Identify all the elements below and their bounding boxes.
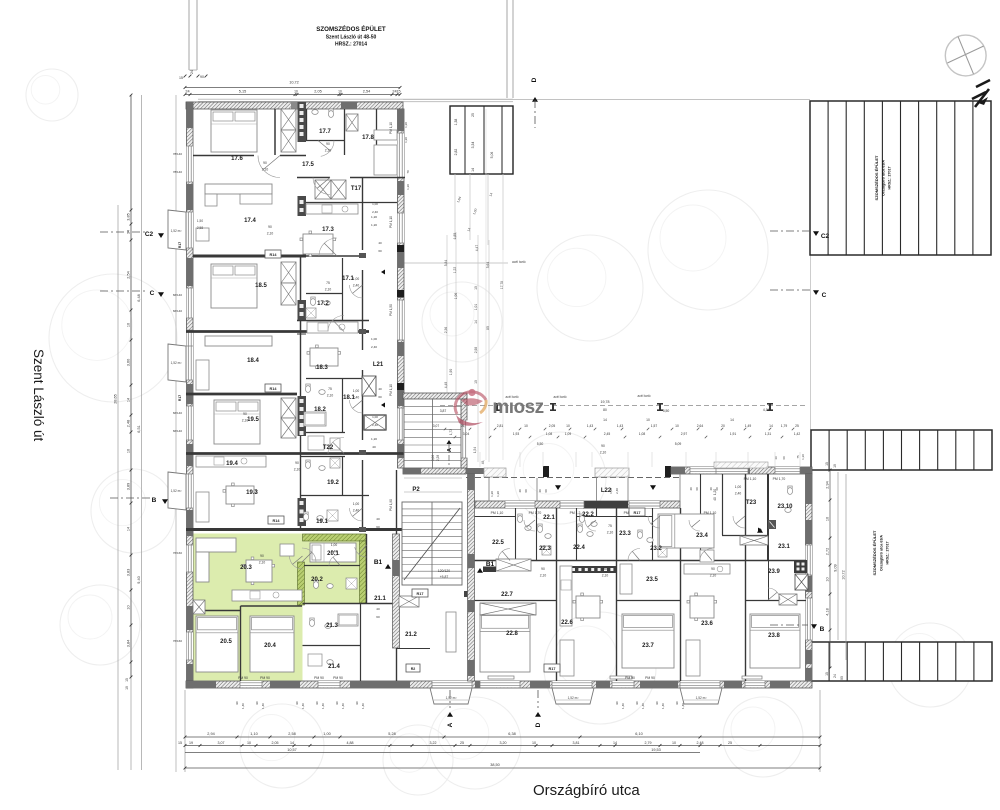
svg-text:SZOMSZÉDOS ÉPÜLET: SZOMSZÉDOS ÉPÜLET [316, 25, 386, 33]
svg-text:90: 90 [263, 161, 267, 165]
svg-text:22.2: 22.2 [582, 512, 594, 518]
svg-text:25: 25 [471, 113, 475, 117]
svg-text:1,91: 1,91 [730, 432, 737, 436]
svg-text:80: 80 [603, 408, 607, 412]
svg-text:1,85: 1,85 [453, 233, 457, 240]
svg-text:2,64: 2,64 [697, 424, 704, 428]
svg-text:1,52 m²: 1,52 m² [568, 696, 579, 700]
svg-text:40: 40 [376, 607, 380, 611]
svg-text:R17: R17 [178, 395, 182, 401]
svg-text:1,00: 1,00 [323, 732, 330, 736]
svg-text:PM 1,10: PM 1,10 [491, 511, 504, 515]
svg-text:6,51: 6,51 [137, 425, 141, 432]
svg-text:6,10: 6,10 [635, 732, 642, 736]
svg-text:4,47: 4,47 [475, 245, 479, 252]
svg-text:10,72: 10,72 [842, 570, 846, 580]
svg-text:60: 60 [524, 489, 528, 493]
svg-text:10: 10 [675, 424, 679, 428]
svg-text:2,94: 2,94 [826, 481, 830, 488]
svg-text:1,20: 1,20 [406, 184, 410, 190]
svg-text:22.8: 22.8 [506, 631, 518, 637]
svg-text:1,22: 1,22 [453, 267, 457, 274]
svg-text:23.7: 23.7 [642, 643, 654, 649]
svg-text:5,28: 5,28 [388, 732, 395, 736]
svg-text:HRSZ.: 27014: HRSZ.: 27014 [335, 42, 367, 48]
svg-text:T23: T23 [746, 500, 757, 506]
svg-text:15: 15 [178, 741, 182, 745]
svg-text:1,40: 1,40 [361, 703, 365, 709]
svg-text:1,43: 1,43 [587, 424, 594, 428]
svg-text:66/140: 66/140 [173, 309, 183, 313]
svg-text:19: 19 [189, 741, 193, 745]
svg-text:PM 1,10: PM 1,10 [389, 216, 393, 228]
svg-text:1,00: 1,00 [371, 337, 377, 341]
svg-text:4,18: 4,18 [826, 608, 830, 615]
svg-text:PM 1,70: PM 1,70 [773, 477, 786, 481]
svg-text:1,38: 1,38 [454, 119, 458, 126]
svg-text:1,20: 1,20 [490, 491, 494, 497]
svg-text:90: 90 [326, 142, 330, 146]
svg-text:90: 90 [711, 567, 715, 571]
svg-text:90: 90 [255, 701, 259, 705]
svg-text:2,40: 2,40 [735, 492, 742, 496]
svg-text:3,89: 3,89 [127, 483, 131, 490]
svg-text:PM 90: PM 90 [645, 676, 655, 680]
svg-text:60: 60 [695, 487, 699, 491]
svg-text:3,85: 3,85 [127, 213, 131, 220]
svg-text:20.2: 20.2 [311, 577, 323, 583]
svg-text:1,20: 1,20 [801, 454, 805, 460]
svg-text:1,20: 1,20 [404, 122, 408, 128]
svg-text:acél tartó: acél tartó [637, 394, 650, 398]
svg-text:SZOMSZÉDOS ÉPÜLET: SZOMSZÉDOS ÉPÜLET [872, 530, 877, 575]
svg-text:2,10: 2,10 [325, 149, 332, 153]
svg-text:2,10: 2,10 [710, 574, 717, 578]
svg-text:10: 10 [524, 424, 528, 428]
svg-text:2,40: 2,40 [615, 488, 619, 494]
svg-text:23.3: 23.3 [619, 531, 631, 537]
svg-text:19.3: 19.3 [246, 490, 258, 496]
svg-text:3,20: 3,20 [500, 741, 507, 745]
svg-text:4,88: 4,88 [347, 741, 354, 745]
svg-text:2,40: 2,40 [372, 210, 378, 214]
svg-text:R17: R17 [417, 592, 424, 596]
svg-text:90: 90 [603, 567, 607, 571]
svg-text:D: D [531, 77, 538, 82]
svg-text:C2: C2 [145, 231, 154, 238]
svg-text:22.5: 22.5 [492, 540, 504, 546]
svg-text:1,20: 1,20 [404, 137, 408, 143]
svg-text:Országbíró utca 63/A: Országbíró utca 63/A [880, 535, 884, 571]
svg-text:90: 90 [840, 676, 844, 680]
svg-text:2,58: 2,58 [197, 226, 203, 230]
svg-text:10: 10 [127, 449, 131, 453]
svg-text:PM 90: PM 90 [260, 676, 270, 680]
svg-text:1,49: 1,49 [745, 424, 752, 428]
svg-text:22.4: 22.4 [573, 545, 585, 551]
svg-text:38,50: 38,50 [490, 763, 500, 767]
svg-text:14: 14 [603, 418, 607, 422]
svg-text:1,09: 1,09 [565, 432, 572, 436]
svg-text:17.2: 17.2 [317, 301, 329, 307]
svg-text:17,78: 17,78 [500, 281, 504, 289]
svg-text:Szent László út 48-50: Szent László út 48-50 [326, 35, 377, 41]
svg-text:2,40: 2,40 [372, 423, 378, 427]
svg-text:10: 10 [826, 577, 830, 581]
svg-text:40: 40 [378, 387, 382, 391]
svg-text:R14: R14 [270, 253, 278, 257]
svg-text:10,72: 10,72 [289, 81, 299, 85]
svg-text:60: 60 [782, 456, 786, 460]
svg-text:R17: R17 [178, 242, 182, 248]
svg-text:acél tartó: acél tartó [512, 260, 526, 264]
svg-text:17.5: 17.5 [302, 162, 314, 168]
svg-text:28,65: 28,65 [114, 394, 118, 404]
svg-text:1,52 m²: 1,52 m² [171, 361, 182, 365]
svg-text:1,20: 1,20 [496, 491, 500, 497]
svg-text:R17: R17 [549, 667, 556, 671]
svg-text:1,52 m²: 1,52 m² [696, 696, 707, 700]
svg-text:5,50: 5,50 [663, 409, 670, 413]
svg-text:1,00: 1,00 [353, 502, 360, 506]
svg-text:10: 10 [566, 424, 570, 428]
svg-text:PM 90: PM 90 [314, 676, 324, 680]
svg-text:90: 90 [675, 701, 679, 705]
svg-text:10: 10 [672, 741, 676, 745]
svg-text:25: 25 [460, 741, 464, 745]
svg-text:PM 1,50: PM 1,50 [389, 304, 393, 316]
svg-text:18.3: 18.3 [316, 365, 328, 371]
svg-text:1,08: 1,08 [546, 432, 553, 436]
svg-text:Szent László út: Szent László út [31, 349, 46, 442]
svg-text:Országbíró utca 63/A: Országbíró utca 63/A [882, 160, 886, 196]
svg-text:17.7: 17.7 [319, 129, 331, 135]
svg-text:2,54: 2,54 [127, 271, 131, 278]
svg-text:20.4: 20.4 [264, 643, 276, 649]
svg-text:1,40: 1,40 [661, 703, 665, 709]
svg-text:23.10: 23.10 [777, 504, 793, 510]
svg-text:90: 90 [355, 701, 359, 705]
svg-text:25: 25 [795, 424, 799, 428]
svg-text:1,40: 1,40 [681, 703, 685, 709]
svg-text:HRSZ.: 27017: HRSZ.: 27017 [886, 542, 890, 565]
svg-text:1,72: 1,72 [449, 429, 453, 435]
svg-text:1,90: 1,90 [449, 369, 453, 376]
svg-text:2,10: 2,10 [602, 574, 609, 578]
svg-text:23.9: 23.9 [768, 569, 780, 575]
svg-text:3,22: 3,22 [430, 741, 437, 745]
svg-text:14: 14 [474, 320, 478, 324]
svg-text:1,31: 1,31 [765, 432, 772, 436]
svg-text:14: 14 [769, 424, 773, 428]
svg-text:2,10: 2,10 [259, 561, 266, 565]
svg-text:23.2: 23.2 [650, 546, 662, 552]
svg-text:14: 14 [127, 527, 131, 531]
svg-text:15: 15 [825, 462, 829, 466]
svg-text:17.3: 17.3 [322, 227, 334, 233]
svg-text:15: 15 [179, 76, 183, 80]
svg-text:1,79: 1,79 [781, 424, 788, 428]
svg-text:PM 1,10: PM 1,10 [704, 511, 717, 515]
svg-text:40: 40 [774, 456, 778, 460]
svg-text:10: 10 [646, 418, 650, 422]
svg-text:90: 90 [200, 75, 204, 79]
svg-text:2,97: 2,97 [681, 432, 688, 436]
svg-text:90: 90 [335, 701, 339, 705]
svg-text:3,83: 3,83 [127, 569, 131, 576]
svg-text:22.7: 22.7 [501, 592, 513, 598]
svg-text:T17: T17 [351, 186, 362, 192]
svg-text:2,81: 2,81 [497, 424, 504, 428]
svg-text:18.5: 18.5 [255, 283, 267, 289]
svg-text:75: 75 [328, 387, 332, 391]
svg-text:1,40: 1,40 [241, 703, 245, 709]
svg-text:5,84: 5,84 [444, 260, 448, 267]
svg-text:SZOMSZÉDOS ÉPÜLET: SZOMSZÉDOS ÉPÜLET [874, 155, 879, 200]
svg-text:10: 10 [294, 89, 298, 93]
svg-text:19.2: 19.2 [327, 480, 339, 486]
svg-text:C2: C2 [821, 233, 830, 240]
svg-text:L21: L21 [373, 362, 384, 368]
svg-text:2,05: 2,05 [549, 424, 556, 428]
svg-text:10: 10 [474, 286, 478, 290]
svg-text:2,05: 2,05 [272, 741, 279, 745]
svg-text:2,48: 2,48 [697, 741, 704, 745]
svg-text:1,52 m²: 1,52 m² [171, 229, 182, 233]
svg-text:19,78: 19,78 [601, 400, 610, 404]
svg-text:2,79: 2,79 [645, 741, 652, 745]
svg-text:60: 60 [378, 249, 382, 253]
svg-text:24: 24 [833, 674, 837, 678]
svg-text:R17: R17 [634, 511, 641, 515]
svg-text:1,00: 1,00 [353, 277, 360, 281]
svg-text:1,00: 1,00 [372, 415, 378, 419]
svg-text:2,10: 2,10 [607, 531, 614, 535]
svg-text:2,40: 2,40 [353, 396, 360, 400]
svg-text:1,01: 1,01 [474, 304, 478, 311]
svg-text:10: 10 [338, 89, 342, 93]
svg-text:2,72: 2,72 [826, 548, 830, 555]
svg-text:90: 90 [268, 225, 272, 229]
svg-text:15: 15 [825, 672, 829, 676]
svg-text:1,20: 1,20 [371, 437, 377, 441]
svg-text:2,54: 2,54 [363, 89, 370, 93]
svg-text:3,60: 3,60 [127, 359, 131, 366]
svg-text:90: 90 [243, 412, 247, 416]
svg-text:90: 90 [295, 461, 299, 465]
svg-text:PM 1,70: PM 1,70 [529, 511, 542, 515]
svg-text:90: 90 [541, 567, 545, 571]
svg-text:PM 1,10: PM 1,10 [389, 384, 393, 396]
svg-text:2,05: 2,05 [314, 89, 321, 93]
svg-text:22.1: 22.1 [543, 515, 555, 521]
svg-text:5,15: 5,15 [239, 89, 246, 93]
svg-text:14: 14 [730, 418, 734, 422]
svg-text:14: 14 [127, 398, 131, 402]
svg-text:PM 1,10: PM 1,10 [389, 122, 393, 134]
svg-text:23.8: 23.8 [768, 633, 780, 639]
svg-text:23.4: 23.4 [696, 533, 708, 539]
svg-text:PM 1,90: PM 1,90 [389, 499, 393, 511]
svg-text:1,43: 1,43 [617, 424, 624, 428]
svg-text:60: 60 [376, 525, 380, 529]
svg-text:78/140: 78/140 [173, 170, 183, 174]
svg-text:90: 90 [615, 701, 619, 705]
svg-text:1,42: 1,42 [794, 432, 801, 436]
svg-text:C: C [822, 292, 827, 299]
svg-text:5,09: 5,09 [675, 442, 682, 446]
svg-text:10,57: 10,57 [287, 748, 297, 752]
svg-text:15: 15 [396, 89, 400, 93]
svg-text:75: 75 [608, 524, 612, 528]
svg-text:A: A [447, 448, 453, 452]
svg-text:21.2: 21.2 [405, 632, 417, 638]
svg-text:15: 15 [125, 678, 129, 682]
svg-text:2,48: 2,48 [127, 420, 131, 427]
svg-text:25: 25 [728, 741, 732, 745]
svg-text:2,10: 2,10 [327, 394, 334, 398]
svg-text:3,34: 3,34 [471, 142, 475, 149]
svg-text:PM 90: PM 90 [333, 676, 343, 680]
svg-text:R2: R2 [411, 667, 416, 671]
svg-text:1,40: 1,40 [301, 703, 305, 709]
svg-text:3,87: 3,87 [440, 409, 447, 413]
svg-text:90: 90 [235, 701, 239, 705]
svg-text:18.4: 18.4 [247, 358, 259, 364]
svg-text:49,: 49, [481, 460, 485, 465]
svg-text:1,40: 1,40 [261, 703, 265, 709]
svg-text:60: 60 [376, 615, 380, 619]
svg-text:40: 40 [378, 241, 382, 245]
svg-text:2,10: 2,10 [267, 232, 274, 236]
svg-text:66/140: 66/140 [173, 429, 183, 433]
svg-text:1,40: 1,40 [321, 703, 325, 709]
svg-text:1,00: 1,00 [331, 543, 338, 547]
svg-text:A: A [447, 722, 454, 727]
svg-text:5,64: 5,64 [486, 262, 490, 269]
svg-text:24: 24 [185, 89, 189, 93]
svg-text:B: B [820, 626, 825, 633]
svg-text:+5,87: +5,87 [440, 575, 449, 579]
svg-text:21.4: 21.4 [328, 664, 340, 670]
svg-text:66/140: 66/140 [173, 411, 183, 415]
svg-text:3,06: 3,06 [431, 455, 435, 461]
svg-text:75: 75 [326, 281, 330, 285]
svg-text:60: 60 [544, 489, 548, 493]
svg-text:40: 40 [689, 487, 693, 491]
svg-text:1,52 m²: 1,52 m² [171, 489, 182, 493]
svg-text:19: 19 [125, 686, 129, 690]
svg-text:10: 10 [127, 605, 131, 609]
svg-text:40: 40 [713, 497, 717, 501]
svg-text:2,45: 2,45 [604, 432, 611, 436]
svg-text:1,20: 1,20 [371, 223, 377, 227]
svg-text:22.3: 22.3 [539, 546, 551, 552]
svg-text:10: 10 [247, 741, 251, 745]
svg-text:1,40: 1,40 [341, 703, 345, 709]
svg-text:1,93: 1,93 [513, 432, 520, 436]
svg-text:6,38: 6,38 [508, 732, 515, 736]
svg-text:1,54: 1,54 [473, 447, 477, 453]
svg-text:78/140: 78/140 [173, 152, 183, 156]
svg-text:40: 40 [376, 517, 380, 521]
svg-text:76/160: 76/160 [173, 551, 183, 555]
svg-text:HRSZ.: 27017: HRSZ.: 27017 [888, 167, 892, 190]
svg-text:90: 90 [295, 701, 299, 705]
svg-text:80: 80 [486, 326, 490, 330]
svg-text:19.1: 19.1 [316, 519, 328, 525]
svg-text:24: 24 [190, 70, 194, 74]
svg-text:mıosz: mıosz [492, 397, 543, 418]
svg-text:2,28: 2,28 [436, 455, 440, 461]
svg-text:2,98: 2,98 [474, 347, 478, 354]
svg-text:10: 10 [532, 741, 536, 745]
svg-text:1,00: 1,00 [609, 488, 613, 494]
svg-text:40: 40 [372, 445, 376, 449]
svg-text:23.5: 23.5 [646, 577, 658, 583]
svg-text:P2: P2 [412, 487, 420, 493]
svg-text:2,10: 2,10 [294, 468, 301, 472]
svg-text:2,10: 2,10 [600, 451, 607, 455]
svg-text:C: C [150, 290, 155, 297]
svg-text:1,00: 1,00 [735, 485, 742, 489]
svg-text:70: 70 [406, 170, 410, 174]
svg-text:2,10: 2,10 [325, 288, 332, 292]
svg-text:19.5: 19.5 [247, 417, 259, 423]
svg-text:2,58: 2,58 [288, 732, 295, 736]
svg-text:B1: B1 [374, 559, 383, 566]
svg-text:3,84: 3,84 [127, 640, 131, 647]
svg-text:Országbíró utca: Országbíró utca [533, 782, 640, 799]
svg-text:2,40: 2,40 [353, 509, 360, 513]
svg-text:23.1: 23.1 [778, 544, 790, 550]
svg-text:10: 10 [826, 517, 830, 521]
svg-text:17.6: 17.6 [231, 156, 243, 162]
svg-text:B: B [152, 497, 157, 504]
svg-text:10: 10 [474, 380, 478, 384]
svg-text:21.1: 21.1 [374, 596, 386, 602]
svg-text:22.6: 22.6 [561, 620, 573, 626]
svg-text:1,57: 1,57 [651, 424, 658, 428]
svg-text:PM 1,10: PM 1,10 [744, 477, 757, 481]
svg-text:90: 90 [655, 701, 659, 705]
svg-text:PM 90: PM 90 [625, 676, 635, 680]
svg-text:4,49: 4,49 [444, 382, 448, 389]
svg-text:2,82: 2,82 [454, 149, 458, 156]
svg-text:14: 14 [471, 168, 475, 172]
svg-text:3,81: 3,81 [573, 741, 580, 745]
svg-text:T22: T22 [323, 445, 334, 451]
svg-text:1,00: 1,00 [372, 202, 378, 206]
svg-text:2,10: 2,10 [242, 419, 249, 423]
svg-text:R14: R14 [270, 387, 278, 391]
svg-text:9,40: 9,40 [137, 576, 141, 583]
svg-text:PM 90: PM 90 [238, 676, 248, 680]
svg-text:40: 40 [538, 489, 542, 493]
svg-text:5,50: 5,50 [537, 442, 544, 446]
svg-text:1,50: 1,50 [197, 219, 203, 223]
svg-text:19.4: 19.4 [226, 461, 238, 467]
svg-text:2,10: 2,10 [262, 168, 269, 172]
svg-text:10: 10 [127, 323, 131, 327]
svg-text:1,20: 1,20 [371, 215, 377, 219]
svg-text:18.2: 18.2 [314, 407, 326, 413]
svg-text:17.4: 17.4 [244, 218, 256, 224]
svg-text:19,53: 19,53 [651, 748, 661, 752]
svg-text:75: 75 [796, 455, 800, 459]
svg-text:D: D [535, 722, 542, 727]
svg-text:1,40: 1,40 [641, 703, 645, 709]
